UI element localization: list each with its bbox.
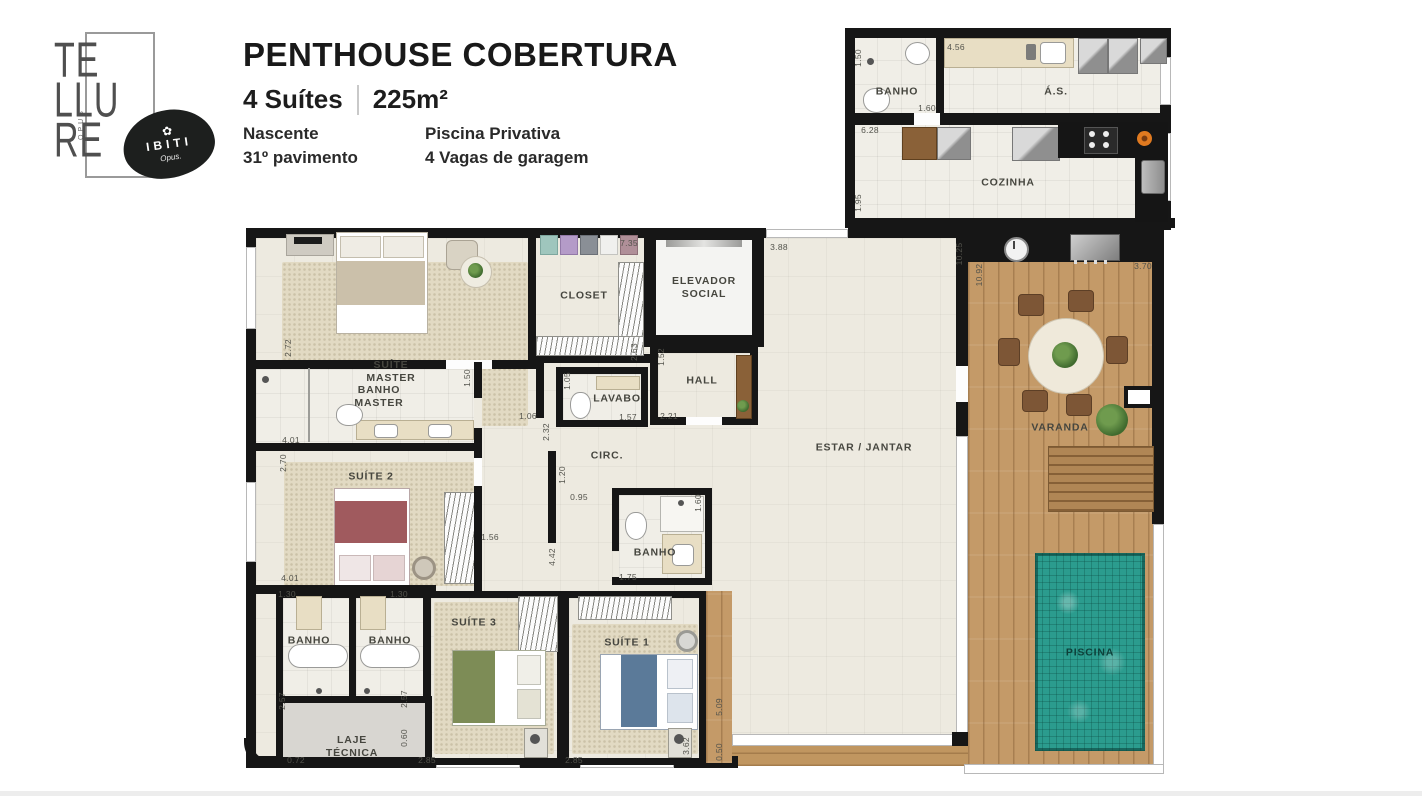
- main-wall-top-right: [848, 228, 968, 238]
- blanket: [337, 261, 425, 305]
- door-banho-master: [474, 398, 482, 428]
- page-bottom-divider: [0, 791, 1422, 796]
- elevator-door: [666, 240, 742, 247]
- wall-suite-master-bottom: [246, 360, 538, 369]
- estar-top-window: [766, 229, 848, 238]
- lavabo-toilet: [570, 392, 591, 419]
- banho-master-shower-head: [262, 376, 269, 383]
- wing-wall-top: [845, 28, 1171, 38]
- suite-master-tv: [294, 237, 322, 244]
- south-deck-strip: [732, 744, 968, 766]
- estar-varanda-wall: [956, 228, 968, 436]
- cooktop-burner-4: [1103, 142, 1109, 148]
- vanity-sink-2: [428, 424, 452, 438]
- service-toilet: [863, 88, 890, 113]
- floor-plan: BANHOÁ.S.COZINHASUÍTE MASTERCLOSETELEVAD…: [0, 0, 1422, 800]
- suite-3-bed: [452, 650, 546, 726]
- wall-suite-master-closet: [528, 234, 536, 364]
- grill-knob-row: [1074, 260, 1114, 264]
- door-banho-suites: [612, 551, 619, 577]
- blanket: [453, 651, 495, 723]
- clock-icon: [1004, 237, 1029, 262]
- varanda-chair-2: [1068, 290, 1094, 312]
- varanda-chair-6: [1066, 394, 1092, 416]
- banho-dir-tub: [360, 644, 420, 668]
- fridge-icon: [1141, 160, 1165, 194]
- closet-shirt-1: [540, 235, 558, 255]
- varanda-door: [956, 366, 968, 402]
- dryer-icon: [1108, 38, 1138, 74]
- pillow: [517, 655, 541, 685]
- estar-south-glass: [732, 734, 958, 746]
- pillow: [667, 693, 693, 723]
- laundry-faucet: [1026, 44, 1036, 60]
- varanda-steps: [1048, 446, 1154, 512]
- varanda-chair-4: [1106, 336, 1128, 364]
- pillow: [339, 555, 371, 581]
- laundry-sink: [1040, 42, 1066, 64]
- suite-2-bed: [334, 488, 410, 588]
- banho-esq-vanity: [296, 596, 322, 630]
- service-washbasin: [905, 42, 930, 65]
- varanda-chair-5: [1022, 390, 1048, 412]
- wing-wall-bottom: [845, 218, 1175, 228]
- varanda-plant: [1096, 404, 1128, 436]
- pillow: [517, 689, 541, 719]
- varanda-table-plant: [1052, 342, 1078, 368]
- lavabo-counter: [596, 376, 640, 390]
- washer-icon: [1078, 38, 1108, 74]
- suite-master-plant: [468, 263, 483, 278]
- door-suite-2: [474, 458, 482, 486]
- suite-1-wardrobe: [578, 596, 672, 620]
- suite-master-window: [246, 247, 256, 329]
- floorplan-page: { "header": { "logo": { "brand_lines": […: [0, 0, 1422, 800]
- banho-master-shower-glass: [308, 368, 310, 442]
- closet-shirt-2: [560, 235, 578, 255]
- banho-suites-sink: [672, 544, 694, 566]
- shower-head-icon: [867, 58, 874, 65]
- varanda-planter: [1124, 386, 1154, 408]
- varanda-rail-right: [1153, 524, 1164, 768]
- varanda-grill-wall: [968, 228, 1158, 262]
- varanda-chair-1: [1018, 294, 1044, 316]
- closet-shirt-5: [620, 235, 638, 255]
- closet-rack-bottom: [536, 336, 644, 356]
- laje-tecnica-room: [276, 696, 432, 764]
- wall-circ-stub-2: [548, 451, 556, 543]
- varanda-chair-3: [998, 338, 1020, 366]
- closet-shirt-3: [580, 235, 598, 255]
- closet-rack-right: [618, 262, 644, 344]
- kitchen-island-counter: [1012, 127, 1060, 161]
- wood-panel-strip: [706, 591, 732, 763]
- estar-east-glass: [956, 436, 968, 736]
- elevator-cab: [656, 240, 752, 335]
- banho-dir-drain: [364, 688, 370, 694]
- suite-2-pouf: [412, 556, 436, 580]
- blanket: [335, 501, 407, 543]
- banho-esq-drain: [316, 688, 322, 694]
- grill-icon: [1070, 234, 1120, 261]
- wing-wall-left: [845, 28, 855, 228]
- tank-sink: [1140, 38, 1167, 64]
- door-hall: [686, 417, 722, 425]
- pillow: [667, 659, 693, 689]
- wall-banho-master-bottom: [246, 443, 482, 451]
- pillow: [340, 236, 381, 258]
- cooktop-burner-1: [1089, 131, 1095, 137]
- hall-plant: [737, 400, 749, 412]
- banho-suites-toilet: [625, 512, 647, 540]
- suite-2-wardrobe: [444, 492, 476, 584]
- wall-circ-stub-1: [536, 362, 544, 418]
- suite-master-bed: [336, 232, 428, 334]
- suite-3-lamp: [530, 734, 540, 744]
- kitchen-cabinet: [902, 127, 937, 160]
- cooktop-burner-3: [1089, 142, 1095, 148]
- banho-esq-tub: [288, 644, 348, 668]
- door-suite-master: [446, 360, 492, 369]
- suite-1-pouf: [676, 630, 698, 652]
- clock-hand: [1013, 241, 1015, 249]
- banho-suites-shower-head: [678, 500, 684, 506]
- flower-decor-icon: [1137, 131, 1152, 146]
- wing-window-1: [1160, 57, 1171, 105]
- banho-master-toilet: [336, 404, 363, 426]
- suite-1-bed: [600, 654, 698, 730]
- suite-3-wardrobe: [518, 596, 558, 652]
- varanda-rail-bottom: [964, 764, 1164, 774]
- banho-dir-vanity: [360, 596, 386, 630]
- closet-shirt-4: [600, 235, 618, 255]
- wall-banho-as-divider: [936, 32, 944, 120]
- dishwasher-icon: [937, 127, 971, 160]
- pillow: [373, 555, 405, 581]
- pillow: [383, 236, 424, 258]
- cooktop-burner-2: [1103, 131, 1109, 137]
- pool: [1035, 553, 1145, 751]
- glass-corner-post: [952, 732, 968, 746]
- suite-2-window: [246, 482, 256, 562]
- door-banho-servico: [914, 113, 940, 125]
- vanity-sink-1: [374, 424, 398, 438]
- blanket: [621, 655, 657, 727]
- suite-1-lamp: [674, 734, 684, 744]
